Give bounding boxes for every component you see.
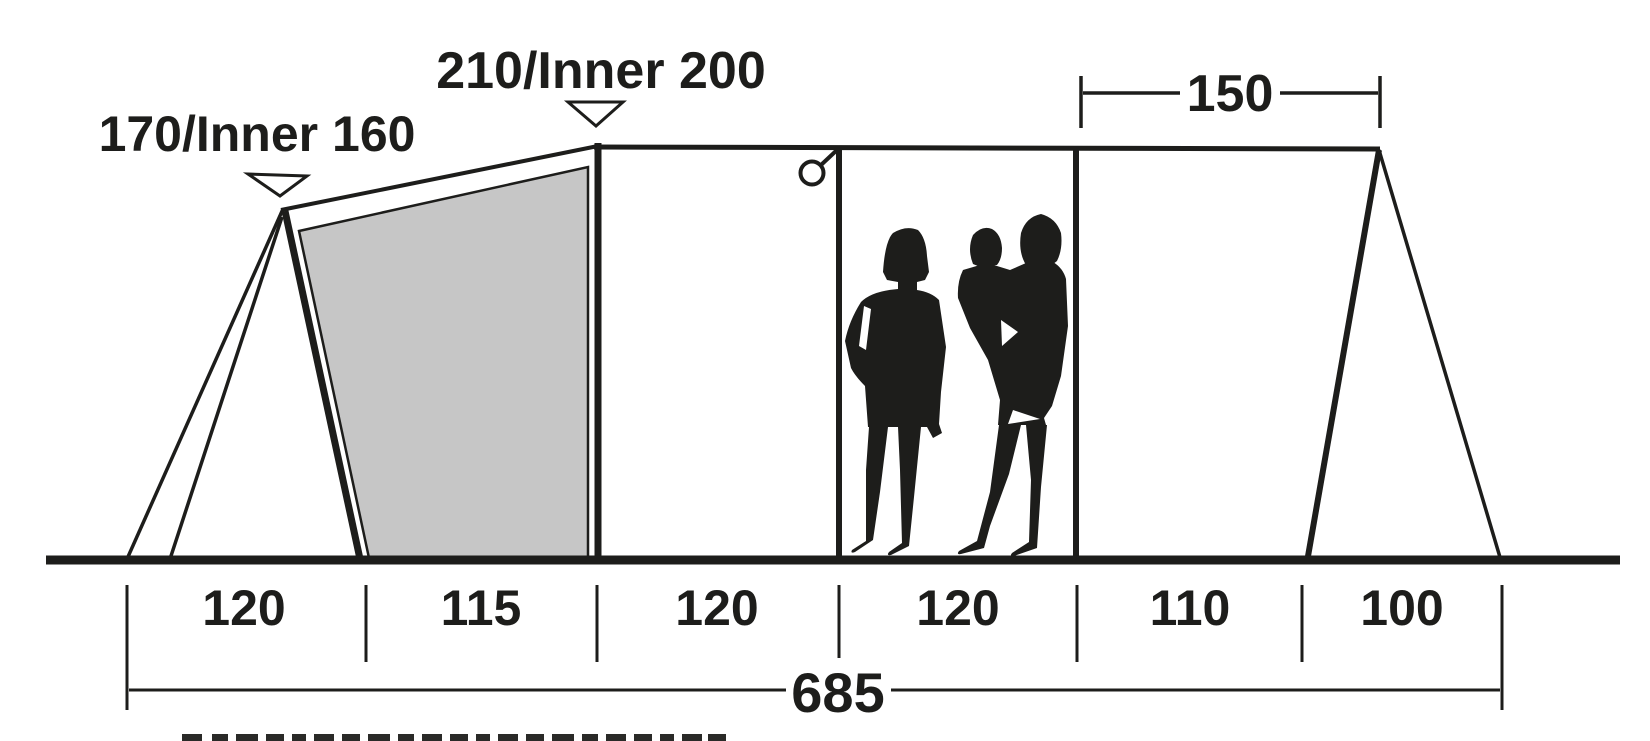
main-height-label: 210/Inner 200 [436, 42, 766, 100]
segment-value-5: 110 [1150, 580, 1231, 636]
segment-value-6: 100 [1360, 580, 1443, 636]
rear-guy-line [1379, 150, 1502, 564]
diagram-canvas: 170/Inner 160 210/Inner 200 150 120 115 … [0, 0, 1650, 741]
main-height-arrow-icon [568, 102, 623, 126]
segment-value-1: 120 [202, 580, 285, 636]
front-inner-line [170, 217, 282, 559]
front-guy-line [127, 209, 283, 559]
segment-value-2: 115 [441, 580, 522, 636]
segment-labels: 120 115 120 120 110 100 [202, 580, 1443, 636]
rear-pole [1307, 150, 1379, 562]
front-height-arrow-icon [248, 174, 307, 196]
hang-loop-ring-icon [801, 162, 824, 185]
front-height-label: 170/Inner 160 [99, 106, 416, 162]
tent-dimension-diagram: 170/Inner 160 210/Inner 200 150 120 115 … [0, 0, 1650, 741]
segment-value-4: 120 [916, 580, 999, 636]
family-silhouette [845, 214, 1068, 556]
segment-value-3: 120 [675, 580, 758, 636]
top-dimension-150: 150 [1081, 65, 1380, 128]
ridge-line [594, 147, 1380, 149]
hang-loop-stem [821, 150, 837, 165]
inner-tent-panel [299, 167, 588, 558]
dim685-value: 685 [791, 661, 884, 724]
dim150-value: 150 [1187, 65, 1274, 123]
total-dimension-685: 685 [129, 661, 1500, 724]
clipped-caption-fragment [182, 734, 726, 741]
